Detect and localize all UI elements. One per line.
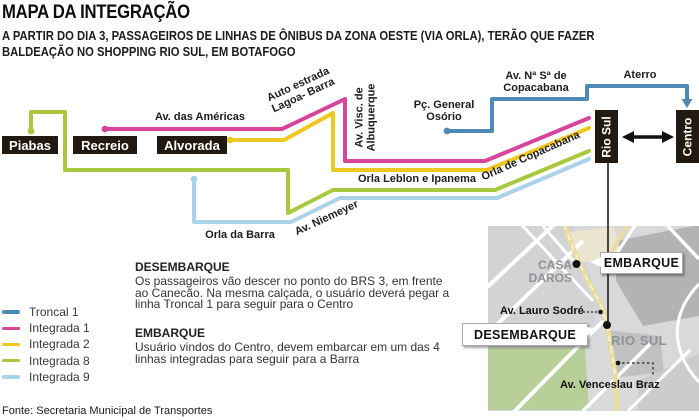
troncal-start-dot [444, 128, 451, 135]
label-av-das-americas: Av. das Américas [130, 112, 270, 124]
station-piabas: Piabas [2, 136, 58, 154]
station-recreio: Recreio [73, 136, 137, 154]
troncal-arrowhead [682, 99, 693, 108]
label-av-niemeyer: Av. Niemeyer [293, 199, 361, 239]
legend-swatch-integrada2 [2, 343, 20, 347]
label-av-visc-line1: Av. Visc. de [355, 81, 367, 155]
legend-item-troncal1: Troncal 1 [2, 304, 90, 320]
desembarque-callout: DESEMBARQUE [462, 323, 588, 346]
integrada2-start-dot [227, 137, 234, 144]
shuttle-arrow-right [662, 131, 674, 143]
subtitle-line-2: BALDEAÇÃO NO SHOPPING RIO SUL, EM BOTAFO… [2, 45, 296, 59]
legend-label-troncal1: Troncal 1 [29, 305, 79, 319]
station-centro-label: Centro [681, 117, 695, 156]
integrada9-start-dot [191, 176, 198, 183]
legend-item-integrada1: Integrada 1 [2, 320, 90, 336]
legend-swatch-integrada1 [2, 327, 20, 331]
infographic-page: { "header": { "title": "MAPA DA INTEGRAÇ… [0, 0, 699, 420]
legend: Troncal 1Integrada 1Integrada 2Integrada… [2, 304, 90, 385]
label-av-lauro-sodre: Av. Lauro Sodré [500, 305, 584, 317]
desembarque-text-line: linha Troncal 1 para seguir para o Centr… [135, 299, 491, 311]
integrada8-start-dot [28, 128, 35, 135]
label-av-venceslau-braz: Av. Venceslau Braz [560, 379, 660, 391]
page-title: MAPA DA INTEGRAÇÃO [2, 2, 190, 24]
legend-label-integrada9: Integrada 9 [29, 370, 90, 384]
station-rio-sul: Rio Sul [595, 110, 618, 163]
station-rio-sul-label: Rio Sul [600, 116, 614, 157]
source-credit: Fonte: Secretaria Municipal de Transport… [2, 405, 212, 417]
label-orla-copacabana: Orla de Copacabana [474, 127, 588, 186]
desembarque-heading: DESEMBARQUE [135, 260, 491, 274]
label-orla-da-barra: Orla da Barra [203, 230, 277, 242]
label-pc-general-line1: Pç. General [404, 100, 484, 112]
legend-label-integrada1: Integrada 1 [29, 321, 90, 335]
station-centro: Centro [676, 110, 699, 163]
label-av-ns-copacabana: Av. Nª Sª de Copacabana [496, 71, 576, 94]
embarque-text-line: linhas integradas para seguir para a Bar… [135, 354, 491, 366]
label-av-ns-line1: Av. Nª Sª de [496, 71, 576, 83]
label-pc-general-osorio: Pç. General Osório [404, 100, 484, 123]
label-av-visc-line2: Albuquerque [366, 81, 378, 155]
label-auto-estrada: Auto estrada Lagoa- Barra [251, 59, 351, 122]
label-aterro: Aterro [610, 70, 670, 82]
legend-label-integrada2: Integrada 2 [29, 337, 90, 351]
station-alvorada: Alvorada [157, 136, 227, 154]
legend-swatch-integrada8 [2, 359, 20, 363]
shuttle-arrow-left [622, 131, 634, 143]
legend-label-integrada8: Integrada 8 [29, 354, 90, 368]
label-rio-sul-area: RIO SUL [611, 333, 667, 348]
legend-swatch-troncal1 [2, 310, 20, 314]
line-integrada-9 [194, 159, 589, 222]
legend-item-integrada2: Integrada 2 [2, 336, 90, 352]
label-casa-daros-line2: DAROS [518, 272, 572, 285]
integrada1-start-dot [102, 126, 109, 133]
embarque-heading: EMBARQUE [135, 326, 491, 340]
label-av-visc-albuquerque: Av. Visc. de Albuquerque [355, 81, 378, 155]
label-av-ns-line2: Copacabana [496, 83, 576, 95]
embarque-callout-tail [590, 257, 601, 267]
legend-item-integrada8: Integrada 8 [2, 353, 90, 369]
label-orla-leblon: Orla Leblon e Ipanema [358, 174, 478, 186]
notes-block: DESEMBARQUE Os passageiros vão descer no… [135, 260, 491, 366]
label-casa-daros: CASA DAROS [518, 259, 572, 285]
legend-item-integrada9: Integrada 9 [2, 369, 90, 385]
embarque-callout: EMBARQUE [600, 252, 683, 274]
label-pc-general-line2: Osório [404, 112, 484, 124]
subtitle-line-1: A PARTIR DO DIA 3, PASSAGEIROS DE LINHAS… [2, 29, 595, 43]
legend-swatch-integrada9 [2, 375, 20, 379]
